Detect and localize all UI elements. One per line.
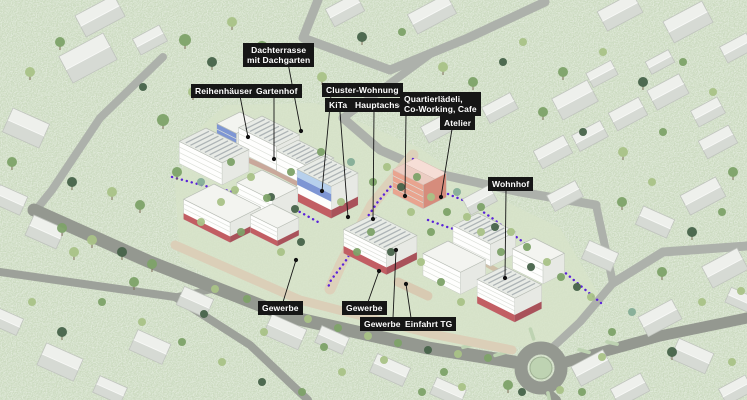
label-wohnhof: Wohnhof xyxy=(488,177,533,191)
label-gewerbe-3: Gewerbe xyxy=(360,317,405,331)
label-cluster-wohnung: Cluster-Wohnung xyxy=(322,83,403,97)
site-plan-canvas xyxy=(0,0,747,400)
label-reihenhaeuser: Reihenhäuser xyxy=(191,84,256,98)
label-einfahrt-tg: Einfahrt TG xyxy=(401,317,456,331)
label-kita: KiTa xyxy=(325,98,351,112)
label-atelier: Atelier xyxy=(440,116,475,130)
label-gartenhof: Gartenhof xyxy=(252,84,302,98)
label-quartierlaedeli: Quartierlädeli, Co-Working, Cafe xyxy=(400,92,481,116)
site-plan-illustration: Dachterrasse mit Dachgarten Reihenhäuser… xyxy=(0,0,747,400)
label-gewerbe-1: Gewerbe xyxy=(258,301,303,315)
label-dachterrasse: Dachterrasse mit Dachgarten xyxy=(243,43,314,67)
label-gewerbe-2: Gewerbe xyxy=(342,301,387,315)
